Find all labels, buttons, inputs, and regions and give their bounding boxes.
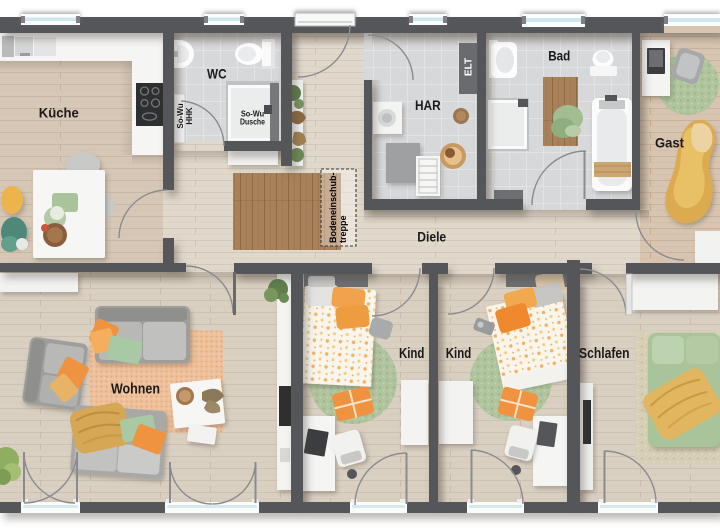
svg-text:So-Wu: So-Wu bbox=[176, 103, 185, 128]
svg-text:Bodeneinschub-: Bodeneinschub- bbox=[328, 172, 338, 243]
svg-text:Bad: Bad bbox=[548, 49, 570, 64]
svg-text:WC: WC bbox=[207, 66, 227, 82]
svg-text:Schlafen: Schlafen bbox=[579, 346, 630, 362]
svg-text:Dusche: Dusche bbox=[240, 118, 265, 127]
svg-text:Wohnen: Wohnen bbox=[111, 382, 160, 398]
svg-text:Diele: Diele bbox=[417, 228, 446, 244]
svg-text:Küche: Küche bbox=[39, 105, 79, 121]
svg-text:HHK: HHK bbox=[185, 107, 194, 125]
svg-text:Kind: Kind bbox=[399, 346, 425, 362]
svg-text:HAR: HAR bbox=[415, 98, 441, 113]
svg-text:Kind: Kind bbox=[446, 346, 472, 362]
svg-text:ELT: ELT bbox=[464, 58, 475, 76]
svg-text:treppe: treppe bbox=[338, 215, 348, 243]
svg-text:Gast: Gast bbox=[655, 136, 684, 151]
